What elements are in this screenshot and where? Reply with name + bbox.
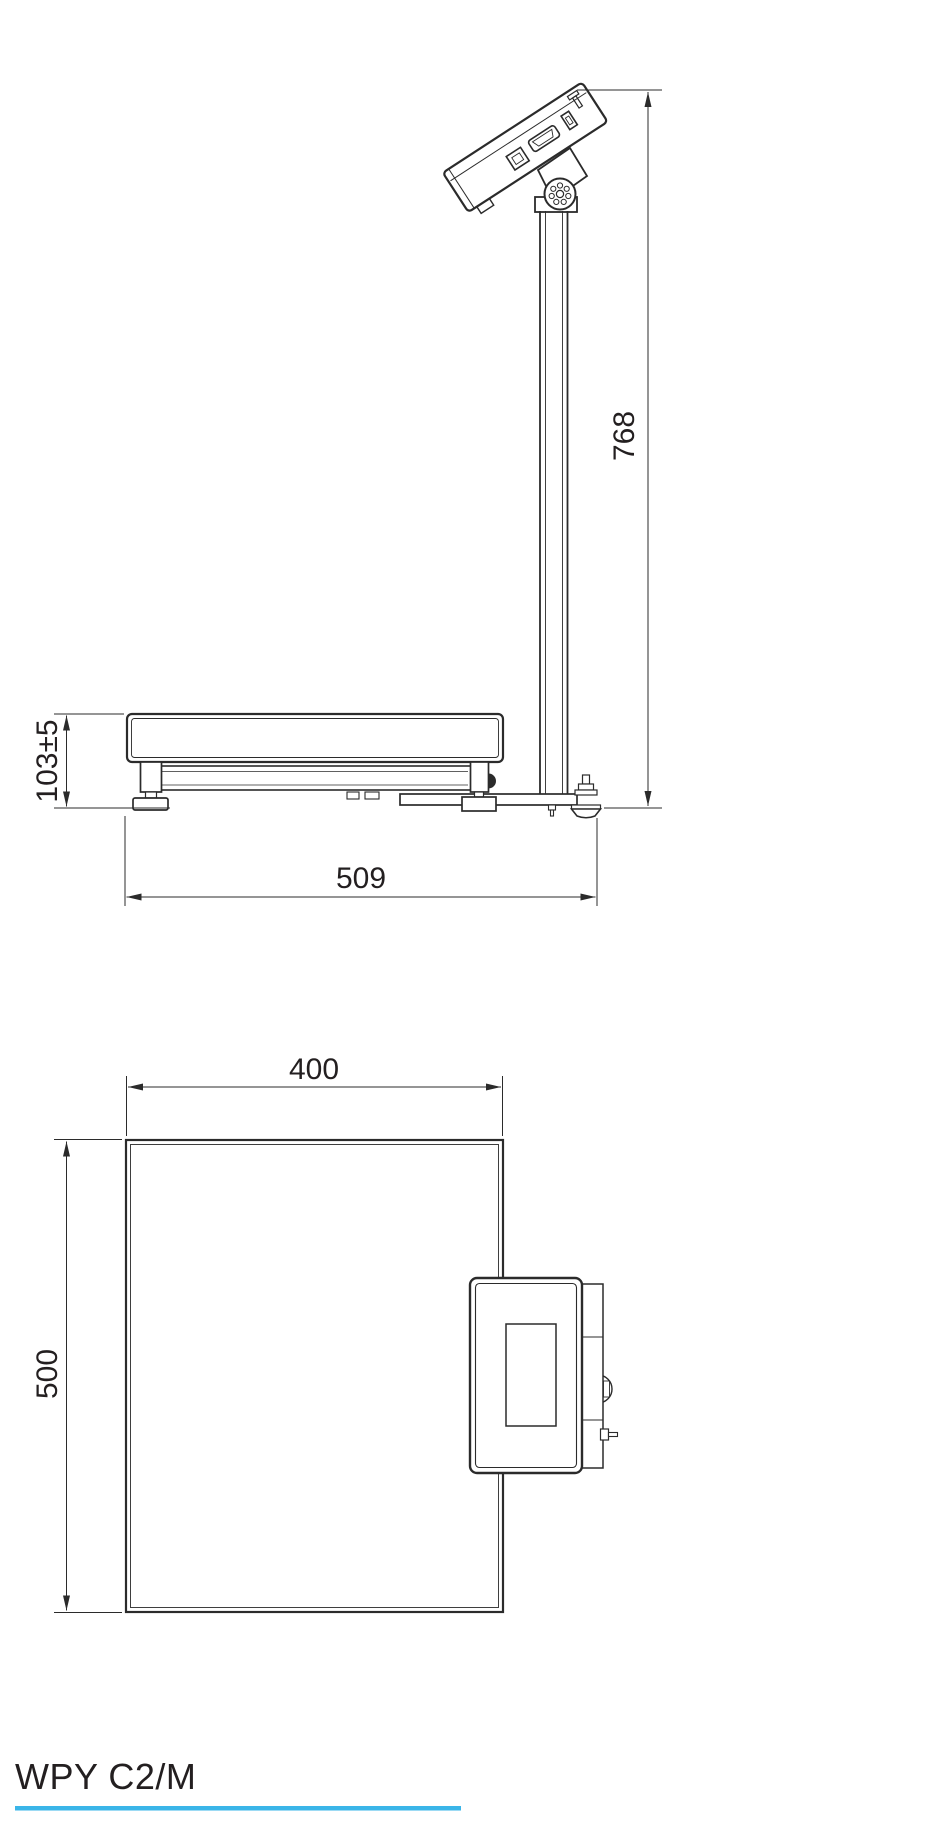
indicator-top-view: [470, 1278, 618, 1473]
dim-400: 400: [127, 1053, 503, 1136]
dim-400-label: 400: [289, 1053, 339, 1086]
technical-drawing: 768 103±5 509: [0, 0, 936, 1830]
dim-768-label: 768: [608, 411, 641, 461]
mounting-knob: [545, 179, 576, 210]
top-view: 400 500: [31, 1053, 618, 1613]
accent-underline: [15, 1806, 461, 1811]
footer: WPY C2/M: [15, 1756, 461, 1811]
drawing-page: 768 103±5 509: [0, 0, 936, 1830]
dim-768: 768: [577, 90, 662, 808]
indicator-head: [443, 82, 612, 219]
dim-500: 500: [31, 1140, 122, 1613]
pole: [540, 211, 568, 795]
side-view: 768 103±5 509: [31, 82, 662, 906]
screw-top-view: [601, 1429, 618, 1440]
indicator-housing: [470, 1278, 582, 1473]
dim-103-label: 103±5: [31, 719, 64, 802]
dim-509: 509: [125, 816, 597, 906]
platform-top-view: [126, 1140, 503, 1612]
mount-bracket-top-view: [580, 1284, 603, 1468]
platform-side: [127, 714, 503, 799]
dim-509-label: 509: [336, 862, 386, 895]
dim-500-label: 500: [31, 1349, 64, 1399]
model-label: WPY C2/M: [15, 1756, 196, 1797]
